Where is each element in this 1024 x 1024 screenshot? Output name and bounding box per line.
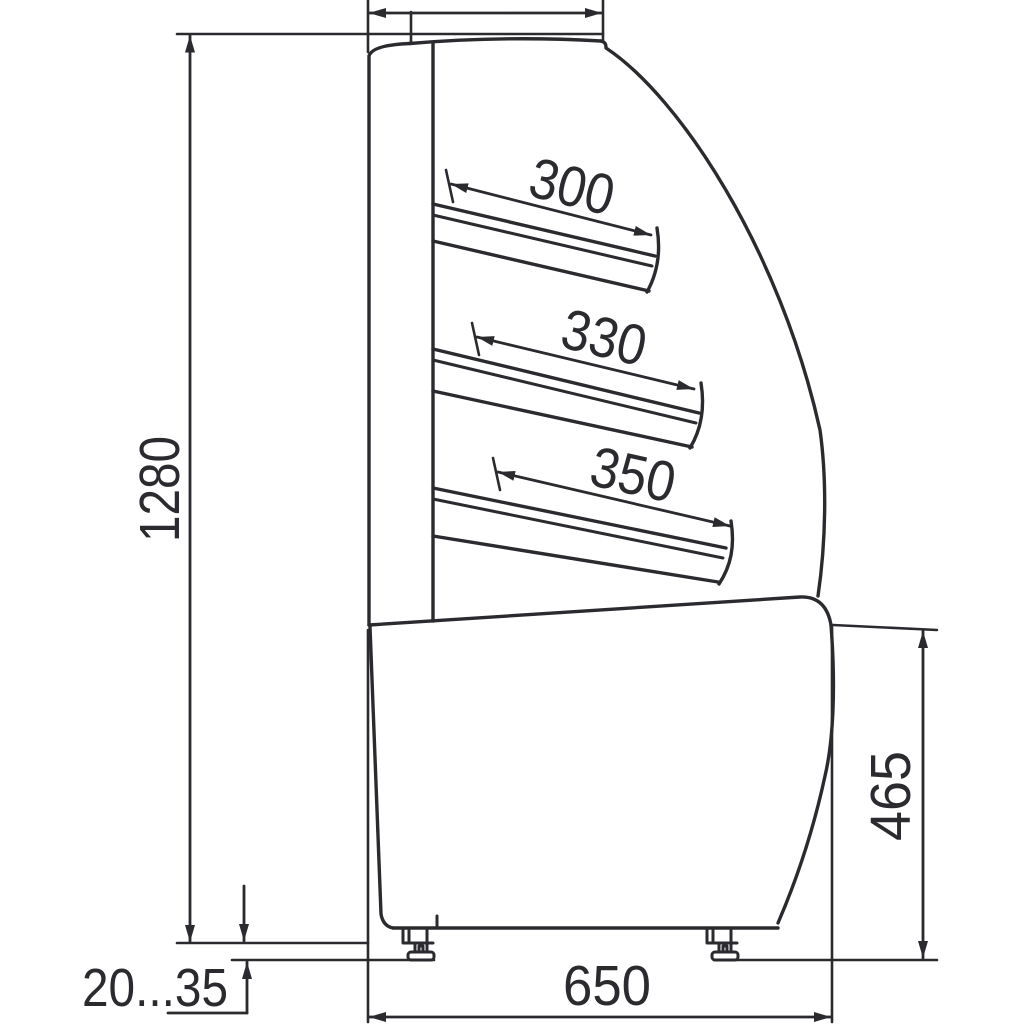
shelf-2-underside-line (433, 391, 692, 447)
back-panel-outer-edge (369, 44, 410, 626)
shelf-2-dim-tick (472, 323, 479, 355)
dim-label-1280: 1280 (128, 436, 192, 542)
shelf-1 (433, 204, 659, 292)
dim-label-300: 300 (523, 146, 621, 229)
shelf-3-underside-line (433, 536, 718, 582)
technical-drawing-page: 1280 300 330 350 465 650 20...35 (0, 0, 1024, 1024)
left-foot-bracket (403, 929, 433, 943)
shelf-1-dim-tick (446, 170, 453, 202)
left-adjustable-foot (403, 929, 434, 960)
dim-label-330: 330 (555, 297, 653, 379)
dimension-shelf-2: 330 (472, 297, 694, 389)
dim-label-650: 650 (563, 954, 651, 1018)
base-height-ext-top (833, 625, 937, 630)
dim-label-465: 465 (859, 751, 923, 841)
dimension-base-depth: 650 (368, 627, 832, 1022)
shelf-3-dim-tick (493, 458, 500, 490)
shelf-1-front-lip (647, 228, 659, 292)
shelf-2-edge-line (433, 360, 696, 423)
shelf-3-front-lip (719, 521, 733, 584)
shelf-3-top-line (433, 488, 726, 548)
dimension-shelf-3: 350 (493, 435, 730, 526)
dimension-shelf-1: 300 (446, 146, 651, 235)
right-adjustable-foot (707, 929, 738, 960)
dim-label-20-35: 20...35 (82, 958, 228, 1018)
dimension-foot-adjust: 20...35 (82, 886, 247, 1018)
technical-drawing: 1280 300 330 350 465 650 20...35 (0, 0, 1024, 1024)
reference-lines (177, 943, 937, 960)
shelf-3-edge-line (433, 499, 723, 558)
shelf-2-front-lip (690, 383, 703, 448)
shelf-3 (433, 488, 733, 584)
dimension-base-height: 465 (833, 625, 937, 958)
top-edge (410, 39, 601, 44)
base-front-face (778, 625, 833, 923)
shelf-2 (433, 349, 703, 448)
right-foot-bracket (707, 929, 737, 943)
base-top-edge (369, 597, 831, 625)
dim-label-350: 350 (585, 435, 682, 516)
shelf-1-edge-line (433, 215, 652, 266)
base-back-edge (370, 627, 393, 928)
